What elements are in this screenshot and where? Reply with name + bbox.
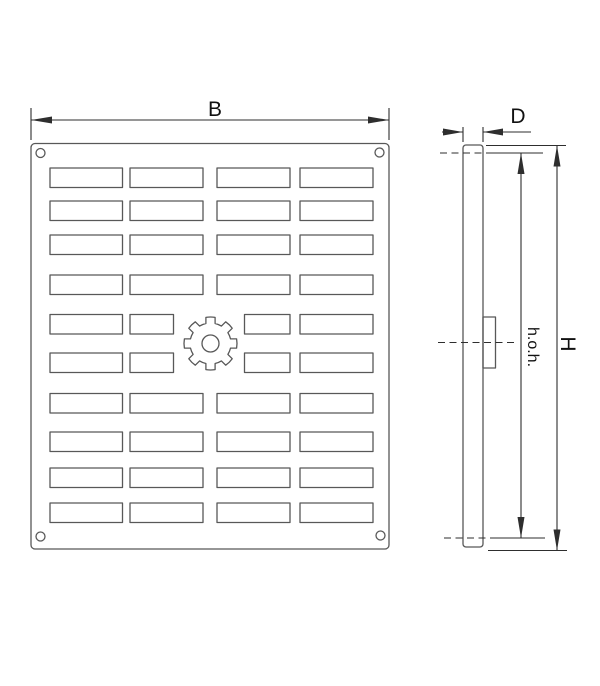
ventilation-slot xyxy=(245,353,291,373)
ventilation-slot xyxy=(300,235,373,255)
ventilation-slot xyxy=(217,201,290,221)
ventilation-slot xyxy=(217,468,290,488)
ventilation-slot xyxy=(217,275,290,295)
arrow-right-icon xyxy=(443,129,463,136)
corner-hole-top-right-icon xyxy=(375,148,384,157)
corner-hole-bottom-left-icon xyxy=(36,532,45,541)
ventilation-slot xyxy=(50,315,123,335)
corner-hole-top-left-icon xyxy=(36,149,45,158)
ventilation-slot xyxy=(130,468,203,488)
ventilation-slot xyxy=(300,394,373,414)
ventilation-slot xyxy=(50,235,123,255)
dim-label-h: H xyxy=(556,336,579,351)
ventilation-slot xyxy=(217,235,290,255)
arrow-left-icon xyxy=(31,117,52,124)
side-view xyxy=(438,145,514,547)
dim-label-b: B xyxy=(208,98,222,121)
arrow-down-icon xyxy=(518,517,525,538)
ventilation-slot xyxy=(130,503,203,523)
dimension-D: D xyxy=(442,105,531,142)
ventilation-slot xyxy=(130,275,203,295)
ventilation-slot xyxy=(217,503,290,523)
ventilation-slot xyxy=(50,201,123,221)
arrow-down-icon xyxy=(554,530,561,551)
ventilation-slot xyxy=(300,168,373,188)
ventilation-slot xyxy=(50,468,123,488)
ventilation-slot xyxy=(300,353,373,373)
ventilation-slot xyxy=(50,394,123,414)
front-view xyxy=(31,144,389,550)
corner-holes xyxy=(36,148,385,541)
ventilation-slot xyxy=(130,235,203,255)
ventilation-slot xyxy=(217,168,290,188)
ventilation-slot xyxy=(50,432,123,452)
gear-knob-icon xyxy=(184,317,237,370)
ventilation-slot xyxy=(130,432,203,452)
ventilation-slot xyxy=(300,275,373,295)
ventilation-slot xyxy=(50,275,123,295)
ventilation-slot xyxy=(300,503,373,523)
dim-label-hoh: h.o.h. xyxy=(524,327,541,367)
ventilation-slot xyxy=(245,315,291,335)
ventilation-slot xyxy=(130,394,203,414)
ventilation-slot xyxy=(300,468,373,488)
plate-side-profile xyxy=(463,145,483,547)
ventilation-slot xyxy=(130,315,174,335)
corner-hole-bottom-right-icon xyxy=(376,531,385,540)
ventilation-slot xyxy=(217,394,290,414)
arrow-left-icon xyxy=(483,129,503,136)
ventilation-slot xyxy=(300,315,373,335)
adjustment-knob xyxy=(184,317,237,370)
arrow-right-icon xyxy=(368,117,389,124)
arrow-up-icon xyxy=(554,146,561,167)
arrow-up-icon xyxy=(518,153,525,174)
grille-plate-outline xyxy=(31,144,389,550)
ventilation-slot xyxy=(300,201,373,221)
ventilation-slot xyxy=(130,353,174,373)
ventilation-slot xyxy=(217,432,290,452)
ventilation-slots xyxy=(50,168,373,523)
ventilation-slot xyxy=(50,168,123,188)
grille-technical-drawing: B D h.o.h. xyxy=(0,0,600,686)
ventilation-slot xyxy=(300,432,373,452)
drawing-canvas: B D h.o.h. xyxy=(0,0,600,686)
dimension-B: B xyxy=(31,98,389,140)
ventilation-slot xyxy=(130,168,203,188)
ventilation-slot xyxy=(50,353,123,373)
ventilation-slot xyxy=(130,201,203,221)
dim-label-d: D xyxy=(510,105,525,128)
ventilation-slot xyxy=(50,503,123,523)
knob-center-hole xyxy=(202,335,219,352)
dimension-hoh: h.o.h. xyxy=(491,153,545,538)
